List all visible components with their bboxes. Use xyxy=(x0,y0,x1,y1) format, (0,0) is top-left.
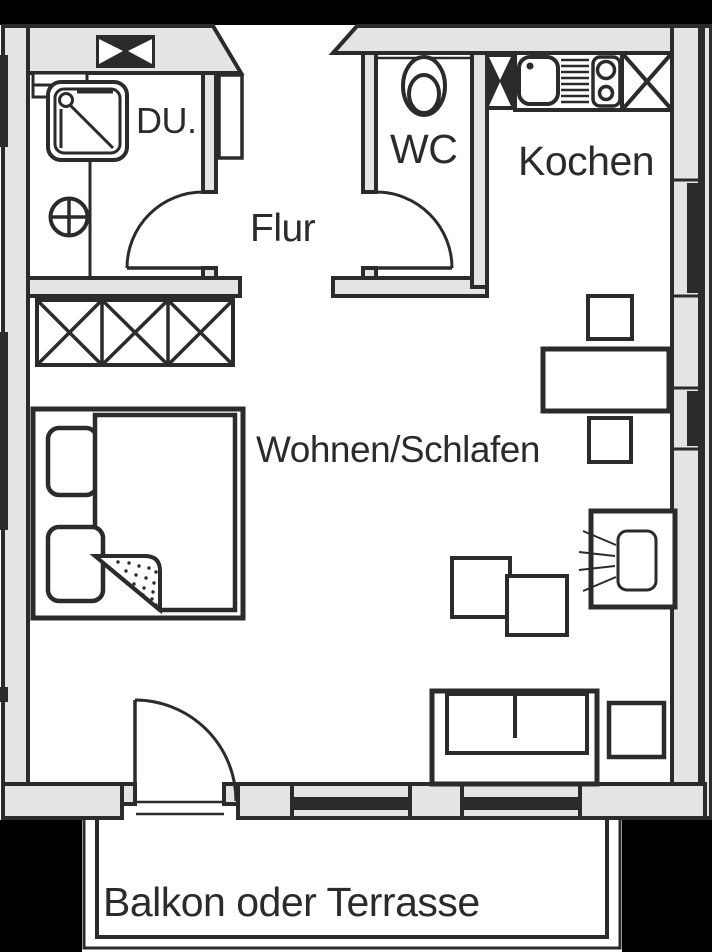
pillow xyxy=(48,527,103,601)
bed xyxy=(33,409,243,618)
side-table xyxy=(609,703,664,757)
dining-table xyxy=(543,349,669,411)
stool xyxy=(507,576,567,635)
floor-plan: DU. Flur WC Kochen Wohnen/Schlafen Balko… xyxy=(0,0,712,952)
room-label-balkon: Balkon oder Terrasse xyxy=(103,882,480,923)
tv xyxy=(618,531,656,590)
tv-unit xyxy=(579,511,675,607)
drain-washbasin xyxy=(50,198,88,236)
room-label-du: DU. xyxy=(136,103,197,139)
vent-shaft-kitchen xyxy=(486,53,514,110)
sofa xyxy=(432,691,597,784)
wardrobe xyxy=(37,300,233,365)
vent-shaft-entry xyxy=(96,35,155,68)
room-label-kochen: Kochen xyxy=(518,141,654,182)
room-label-wohnen: Wohnen/Schlafen xyxy=(256,431,540,468)
stool xyxy=(452,558,510,617)
room-label-flur: Flur xyxy=(250,209,315,248)
room-label-wc: WC xyxy=(390,129,457,170)
pillow xyxy=(48,428,97,495)
kitchen-counter xyxy=(515,53,672,110)
chair xyxy=(588,296,632,339)
entrance-door-leaf xyxy=(219,75,242,158)
chair xyxy=(589,418,631,462)
shower xyxy=(48,82,127,160)
